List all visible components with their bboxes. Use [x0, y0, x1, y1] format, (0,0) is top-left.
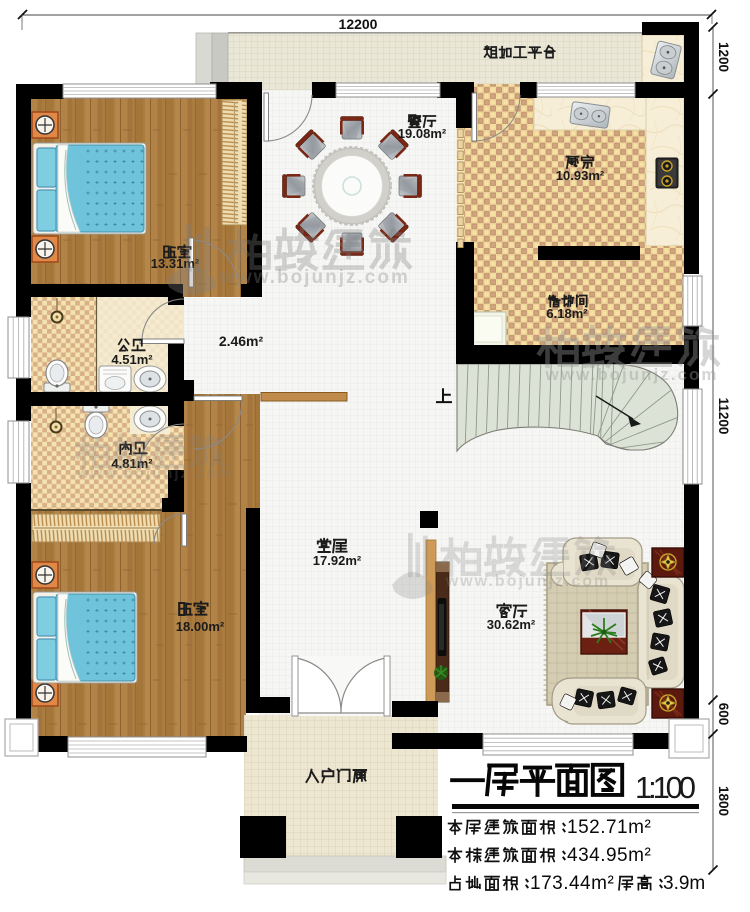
svg-text:6.18m²: 6.18m² — [546, 306, 588, 321]
svg-text:4.51m²: 4.51m² — [111, 352, 153, 367]
svg-text:www.bojunjz.com: www.bojunjz.com — [76, 465, 233, 482]
svg-text:17.92m²: 17.92m² — [313, 553, 362, 568]
svg-text:434.95m²: 434.95m² — [567, 845, 651, 866]
svg-text:173.44m²: 173.44m² — [530, 873, 614, 894]
svg-text:2.46m²: 2.46m² — [219, 333, 264, 349]
svg-text:1800: 1800 — [716, 786, 731, 816]
svg-text:12200: 12200 — [339, 16, 378, 32]
svg-text:11200: 11200 — [716, 398, 731, 435]
svg-text:19.08m²: 19.08m² — [398, 126, 447, 141]
svg-text:152.71m²: 152.71m² — [567, 817, 651, 838]
svg-text:18.00m²: 18.00m² — [176, 619, 225, 634]
svg-text:600: 600 — [716, 703, 731, 726]
svg-text:1:100: 1:100 — [635, 770, 696, 805]
svg-text:3.9m: 3.9m — [663, 873, 705, 894]
svg-text:30.62m²: 30.62m² — [487, 617, 536, 632]
svg-text:1200: 1200 — [716, 42, 731, 72]
svg-text:www.bojunjz.com: www.bojunjz.com — [445, 573, 611, 590]
svg-text:www.bojunjz.com: www.bojunjz.com — [219, 267, 410, 288]
svg-text:10.93m²: 10.93m² — [556, 168, 605, 183]
svg-text:www.bojunjz.com: www.bojunjz.com — [545, 365, 719, 384]
